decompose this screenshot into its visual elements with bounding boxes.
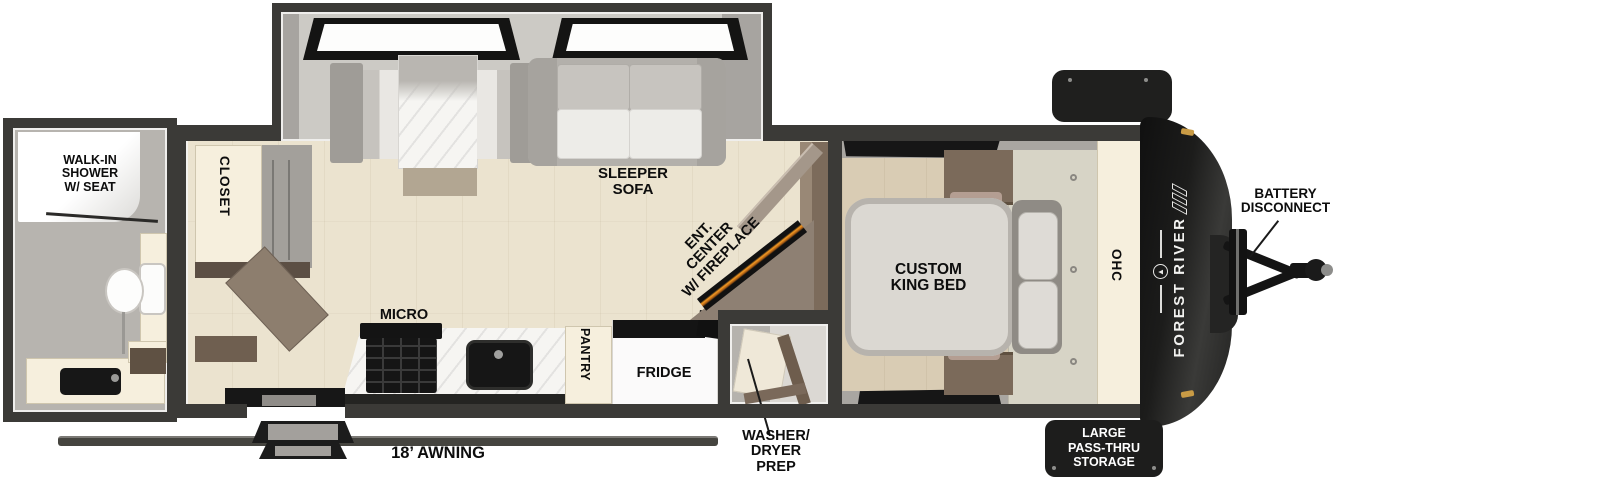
bathroom-section: WALK-IN SHOWER W/ SEAT <box>3 118 177 422</box>
window-glass <box>317 24 506 51</box>
dinette-base <box>403 168 477 196</box>
sofa-arm-left <box>528 58 557 166</box>
brand-name: FOREST RIVER <box>1171 217 1188 358</box>
micro-label: MICRO <box>363 308 445 323</box>
bath-sink-icon <box>60 368 121 395</box>
sleeper-sofa-label-line1: SLEEPER <box>568 166 698 182</box>
washer-label-line2: DRYER <box>700 444 852 459</box>
vanity-upper-cabinet <box>130 348 166 374</box>
window-glass <box>566 24 734 51</box>
sofa-seat-cushion <box>557 109 630 159</box>
storage-latch-icon <box>1070 174 1077 181</box>
sleeper-sofa-label-line2: SOFA <box>568 182 698 198</box>
battery-label-line1: BATTERY <box>1213 187 1358 201</box>
pass-thru-storage-badge: LARGE PASS-THRU STORAGE <box>1045 420 1163 477</box>
table-shadow <box>399 56 477 101</box>
king-bed-label: CUSTOM KING BED <box>856 262 1001 295</box>
king-bed-label-line2: KING BED <box>856 278 1001 294</box>
propane-storage-box <box>1052 70 1172 122</box>
screw-icon <box>1068 78 1072 82</box>
dinette-seat-right <box>477 70 513 159</box>
wall-bottom-right <box>345 404 1150 418</box>
kitchen-sink-icon <box>466 340 533 390</box>
cabinet-door-line <box>288 160 290 260</box>
screw-icon <box>1152 466 1156 470</box>
forest-river-logo-icon: ▲ <box>1153 265 1168 280</box>
corner-cabinet-lower <box>195 336 257 362</box>
king-bed-label-line1: CUSTOM <box>856 262 1001 278</box>
entry-steps-lower <box>259 443 347 459</box>
entry-steps-upper <box>252 421 354 443</box>
slideout-wall-right <box>763 3 772 141</box>
tongue-jack-post <box>1229 229 1247 315</box>
galley-cabinet-gray <box>262 145 312 268</box>
wall-washer-left <box>718 310 730 418</box>
brand-text-row: FOREST RIVER <box>1171 187 1188 358</box>
shower-label-line3: W/ SEAT <box>21 181 159 194</box>
decal-line <box>1160 231 1162 259</box>
awning-label: 18’ AWNING <box>368 445 508 462</box>
washer-label-line3: PREP <box>700 460 852 475</box>
closet-label: CLOSET <box>217 156 232 244</box>
faucet-icon <box>494 350 503 359</box>
storage-latch-icon <box>1070 358 1077 365</box>
cooktop-icon <box>366 338 437 393</box>
range-control-bar <box>360 323 442 339</box>
sleeper-sofa-label: SLEEPER SOFA <box>568 166 698 198</box>
slideout-sidewall-left <box>283 14 299 139</box>
dinette-window-icon <box>303 18 520 60</box>
pantry-label: PANTRY <box>578 328 592 404</box>
entry-door-opening <box>262 395 316 406</box>
sofa-window-icon <box>552 18 748 60</box>
shower-label: WALK-IN SHOWER W/ SEAT <box>21 154 159 194</box>
storage-label-line2: PASS-THRU <box>1045 441 1163 456</box>
wall-top-left <box>172 125 278 141</box>
cabinet-door-line <box>272 160 274 260</box>
screw-icon <box>1144 78 1148 82</box>
storage-label-line3: STORAGE <box>1045 455 1163 470</box>
brand-emblem-row: ▲ <box>1153 231 1168 314</box>
shower-label-line1: WALK-IN <box>21 154 159 167</box>
wall-bedroom-divider <box>828 125 842 418</box>
coupler-tip <box>1321 264 1333 276</box>
wall-bottom-left <box>172 404 247 418</box>
wall-top-right <box>766 125 1150 141</box>
bath-faucet-icon <box>111 374 119 382</box>
wall-washer-top <box>718 310 830 324</box>
washer-label-line1: WASHER/ <box>700 429 852 444</box>
dinette-table <box>398 55 478 169</box>
battery-disconnect-label: BATTERY DISCONNECT <box>1213 187 1358 216</box>
sofa-back-cushion <box>629 64 702 111</box>
battery-leader-line <box>1249 220 1279 257</box>
decal-line <box>1160 286 1162 314</box>
fridge-label: FRIDGE <box>618 366 710 381</box>
slideout-wall-top <box>272 3 772 12</box>
sofa-back-cushion <box>557 64 630 111</box>
washer-label: WASHER/ DRYER PREP <box>700 429 852 475</box>
sofa-seat-cushion <box>629 109 702 159</box>
bed-pillow <box>1018 281 1058 349</box>
slideout-wall-left <box>272 3 281 141</box>
dinette-bench-back-left <box>330 63 363 163</box>
storage-latch-icon <box>1070 266 1077 273</box>
ent-center-back-panel <box>812 142 828 318</box>
bed-pillow <box>1018 212 1058 280</box>
ohc-label: OHC <box>1109 249 1124 299</box>
storage-label-line1: LARGE <box>1045 426 1163 441</box>
shower-label-line2: SHOWER <box>21 167 159 180</box>
entry-step-tread <box>268 424 338 440</box>
toilet-plumbing <box>122 312 125 354</box>
floorplan-canvas: 18’ AWNING SLEEPER SOFA CLOSET <box>0 0 1600 488</box>
screw-icon <box>1052 466 1056 470</box>
brand-stripes-icon <box>1172 187 1187 211</box>
fridge-top-panel <box>613 320 705 338</box>
dinette-seat-left <box>363 70 400 159</box>
entry-step-tread <box>275 446 331 456</box>
toilet-bowl-icon <box>105 268 144 314</box>
battery-label-line2: DISCONNECT <box>1213 201 1358 215</box>
